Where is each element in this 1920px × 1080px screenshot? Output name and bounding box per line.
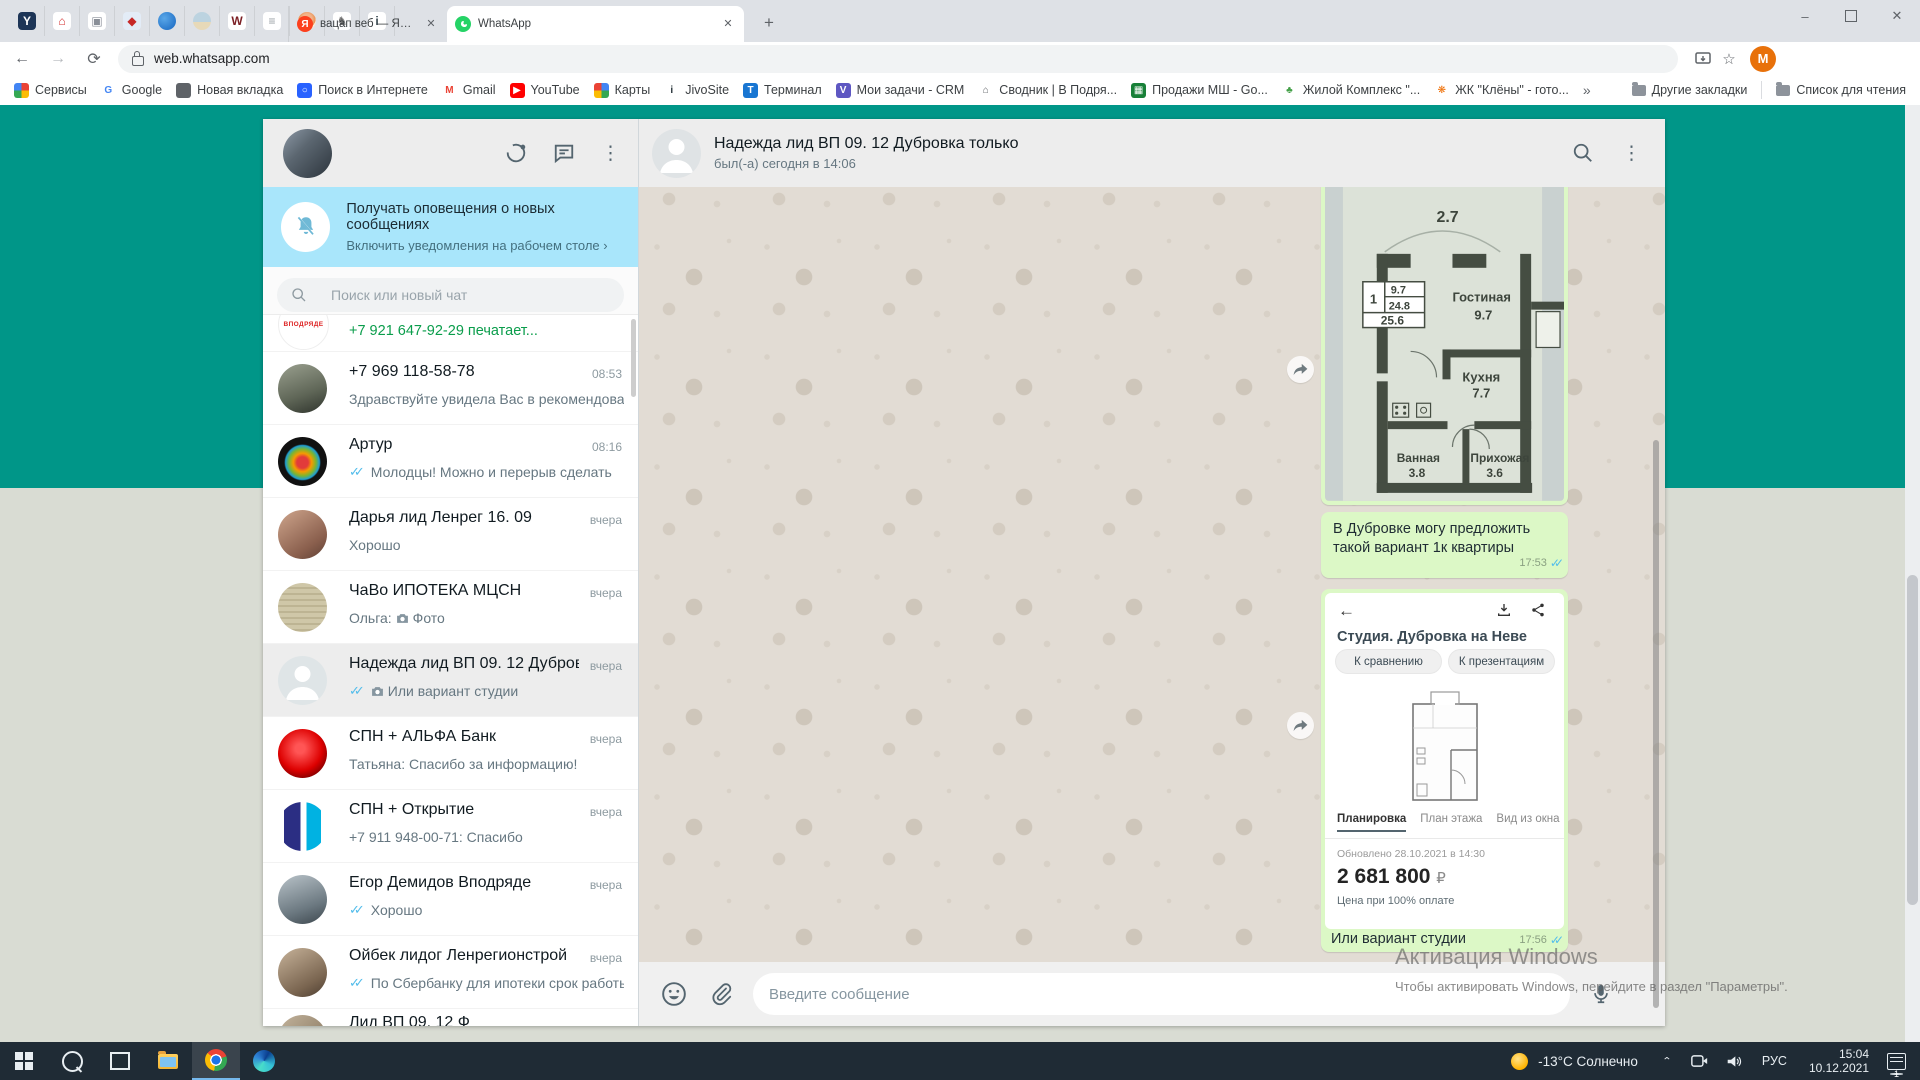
chat-time: вчера	[590, 586, 622, 600]
whatsapp-favicon	[455, 16, 471, 32]
pinned-tab[interactable]: W	[220, 6, 255, 36]
room-living-area: 9.7	[1474, 308, 1492, 323]
tab-layout[interactable]: Планировка	[1337, 813, 1406, 825]
pinned-tab[interactable]: ≡	[255, 6, 290, 36]
bookmark-items: Сервисы G Google Новая вкладка ○ Поиск в…	[0, 83, 1569, 98]
browser-tab-strip: Y ⌂ ▣ ◆	[0, 0, 1920, 42]
read-ticks-icon: ✓✓	[1550, 554, 1558, 573]
share-icon[interactable]	[1530, 602, 1546, 618]
compare-button[interactable]: К сравнению	[1335, 649, 1442, 674]
avatar	[278, 510, 327, 559]
message-body: В Дубровке могу предложить такой вариант…	[1333, 521, 1530, 556]
conversation-pane: Надежда лид ВП 09. 12 Дубровка только бы…	[638, 119, 1665, 1026]
notification-center-icon[interactable]: 1	[1887, 1053, 1906, 1070]
chat-preview: ✓✓ Или вариант студии	[349, 683, 624, 699]
chat-preview: ✓✓ +7 911 948-00-71: Спасибо	[349, 829, 624, 845]
card-toolbar: ←	[1325, 593, 1564, 627]
bookmark[interactable]: T Терминал	[743, 83, 822, 98]
pinned-tab-icon: Y	[18, 12, 36, 30]
chat-preview: ✓✓ Хорошо	[349, 537, 624, 553]
volume-icon[interactable]	[1726, 1054, 1743, 1069]
forward-message-button[interactable]	[1287, 356, 1314, 383]
read-ticks-icon: ✓✓	[349, 975, 359, 991]
avatar	[278, 875, 327, 924]
read-ticks-icon: ✓✓	[349, 464, 359, 480]
meet-now-icon[interactable]	[1691, 1054, 1708, 1068]
peer-avatar[interactable]	[652, 129, 701, 178]
search-pill[interactable]	[277, 278, 624, 312]
bookmark-favicon	[594, 83, 609, 98]
pinned-tab-icon: ⌂	[53, 12, 71, 30]
tab-close-icon[interactable]: ✕	[423, 16, 439, 32]
chat-name: Дарья лид Ленрег 16. 09	[349, 509, 532, 527]
chat-list-item-partial[interactable]: Лид ВП 09. 12 Ф	[263, 1009, 638, 1026]
message-text[interactable]: В Дубровке могу предложить такой вариант…	[1321, 512, 1568, 578]
bell-muted-icon	[281, 202, 330, 252]
clock-date: 10.12.2021	[1809, 1061, 1869, 1075]
camera-icon	[396, 613, 409, 624]
chat-list-item[interactable]: Артур 08:16 ✓✓ Молодцы! Можно и перерыв …	[263, 425, 638, 498]
message-input[interactable]	[753, 973, 1570, 1015]
card-price: 2 681 800 ₽	[1337, 865, 1446, 889]
search-section	[263, 267, 638, 315]
chat-name: Артур	[349, 436, 392, 454]
room-kitchen-label: Кухня	[1462, 369, 1500, 384]
tab-title: WhatsApp	[478, 18, 714, 30]
taskbar-search-icon[interactable]	[48, 1042, 96, 1080]
chat-menu-kebab-icon[interactable]: ⋮	[1622, 142, 1641, 165]
my-profile-avatar[interactable]	[283, 129, 332, 178]
bookmark-star-icon[interactable]: ☆	[1716, 46, 1742, 72]
read-ticks-icon: ✓✓	[349, 683, 359, 699]
chat-time: вчера	[590, 878, 622, 892]
chat-time: вчера	[590, 513, 622, 527]
chat-list-item[interactable]: Егор Демидов Вподряде вчера ✓✓ Хорошо	[263, 863, 638, 936]
windows-taskbar: -13°C Солнечно ⌃ РУС 15:04 10.12.2021 1	[0, 1042, 1920, 1080]
bookmark-favicon: ❋	[1434, 83, 1449, 98]
window-controls: – ✕	[1782, 0, 1920, 32]
chat-name: +7 969 118-58-78	[349, 363, 475, 381]
room-living-label: Гостиная	[1452, 290, 1510, 305]
presentations-button[interactable]: К презентациям	[1448, 649, 1555, 674]
preview-text: +7 911 948-00-71: Спасибо	[349, 829, 523, 845]
bookmark-favicon: G	[101, 83, 116, 98]
chrome-taskbar-icon[interactable]	[192, 1042, 240, 1080]
plan-dim-label: 2.7	[1437, 209, 1459, 226]
reading-list-icon	[1776, 85, 1790, 96]
pinned-tab-icon: ▣	[88, 12, 106, 30]
file-explorer-icon[interactable]	[144, 1042, 192, 1080]
new-tab-button[interactable]: +	[756, 10, 782, 36]
edge-taskbar-icon[interactable]	[240, 1042, 288, 1080]
notification-badge: 1	[1890, 1073, 1903, 1075]
menu-kebab-icon[interactable]: ⋮	[601, 142, 620, 165]
screen: Y ⌂ ▣ ◆	[0, 0, 1920, 1080]
bookmark[interactable]: i JivoSite	[664, 83, 729, 98]
pinned-tab-icon: ◆	[123, 12, 141, 30]
card-title: Студия. Дубровка на Неве	[1337, 629, 1527, 645]
preview-text: Хорошо	[371, 902, 423, 918]
hidden-icons-chevron[interactable]: ⌃	[1662, 1055, 1672, 1066]
emoji-icon[interactable]	[661, 981, 687, 1007]
room-hall-label: Прихожая	[1470, 451, 1529, 465]
message-image-floorplan[interactable]: 2.7	[1321, 178, 1568, 505]
bookmark-favicon: ○	[297, 83, 312, 98]
plan-stamp-num: 1	[1370, 292, 1377, 307]
avatar	[278, 802, 327, 851]
bookmark-favicon: ▶	[510, 83, 525, 98]
preview-text: Молодцы! Можно и перерыв сделать	[371, 464, 612, 480]
reading-list[interactable]: Список для чтения	[1776, 83, 1906, 97]
message-caption: Или вариант студии	[1331, 931, 1466, 947]
folder-icon	[1632, 85, 1646, 96]
bookmark[interactable]: M Gmail	[442, 83, 496, 98]
chat-time: вчера	[590, 659, 622, 673]
bookmark-label: Карты	[615, 83, 651, 97]
preview-text: Или вариант студии	[388, 683, 518, 699]
tab-floor[interactable]: План этажа	[1420, 813, 1482, 825]
bookmark-label: Google	[122, 83, 162, 97]
pinned-tab[interactable]: Y	[10, 6, 45, 36]
bookmark[interactable]: Карты	[594, 83, 651, 98]
attach-paperclip-icon[interactable]	[709, 982, 733, 1006]
currency-symbol: ₽	[1436, 870, 1446, 887]
new-chat-icon[interactable]	[553, 142, 575, 164]
bookmark-favicon	[14, 83, 29, 98]
preview-sender: Ольга:	[349, 610, 392, 626]
start-button[interactable]	[0, 1042, 48, 1080]
default-person-icon	[652, 129, 701, 178]
pinned-tab[interactable]: ◆	[115, 6, 150, 36]
chat-preview: ✓✓ Хорошо	[349, 902, 624, 918]
preview-text: Хорошо	[349, 537, 401, 553]
search-icon	[291, 287, 307, 303]
chat-name: СПН + Открытие	[349, 801, 474, 819]
chat-time: вчера	[590, 732, 622, 746]
bookmark-favicon	[176, 83, 191, 98]
maximize-button[interactable]	[1828, 0, 1874, 32]
bookmark-label: YouTube	[531, 83, 580, 97]
message-input-bar	[639, 962, 1665, 1026]
other-bookmarks[interactable]: Другие закладки	[1632, 83, 1748, 97]
chat-preview: ✓✓ Здравствуйте увидела Вас в рекомендов…	[349, 391, 624, 407]
conversation-header[interactable]: Надежда лид ВП 09. 12 Дубровка только бы…	[639, 119, 1665, 187]
chat-time: вчера	[590, 951, 622, 965]
avatar	[278, 583, 327, 632]
banner-title: Получать оповещения о новых сообщениях	[346, 201, 638, 233]
plan-stamp-total: 25.6	[1381, 314, 1405, 328]
bookmark[interactable]: V Мои задачи - CRM	[836, 83, 965, 98]
search-in-chat-icon[interactable]	[1572, 142, 1594, 164]
pinned-tab-icon: ≡	[263, 12, 281, 30]
chat-list: ВПОДРЯДЕ +7 921 647-92-29 печатает... +7…	[263, 315, 638, 1026]
chat-preview: ✓✓ Ольга: Фото	[349, 610, 624, 626]
browser-profile-avatar[interactable]: M	[1750, 46, 1776, 72]
lock-icon	[132, 56, 144, 66]
tab-close-icon[interactable]: ✕	[720, 16, 736, 32]
other-bookmarks-label: Другие закладки	[1652, 83, 1748, 97]
bookmark[interactable]: Сервисы	[14, 83, 87, 98]
chat-time: вчера	[590, 805, 622, 819]
page-scrollbar[interactable]	[1905, 105, 1920, 1042]
preview-text: Фото	[413, 610, 445, 626]
read-ticks-icon: ✓✓	[1550, 933, 1558, 947]
chat-list-item-typing[interactable]: ВПОДРЯДЕ +7 921 647-92-29 печатает...	[263, 315, 638, 352]
bookmark-favicon: i	[664, 83, 679, 98]
property-card[interactable]: ← Студия. Дубровка на Неве К сравнению К…	[1325, 593, 1564, 929]
card-updated: Обновлено 28.10.2021 в 14:30	[1337, 848, 1485, 860]
pinned-tab-icon	[193, 12, 211, 30]
bookmark[interactable]: ○ Поиск в Интернете	[297, 83, 428, 98]
bookmark[interactable]: G Google	[101, 83, 162, 98]
reading-list-label: Список для чтения	[1796, 83, 1906, 97]
card-price-note: Цена при 100% оплате	[1337, 895, 1454, 907]
bookmark[interactable]: ⌂ Сводник | В Подря...	[978, 83, 1117, 98]
avatar: ВПОДРЯДЕ	[278, 315, 329, 350]
bookmark-label: Жилой Комплекс "...	[1303, 83, 1420, 97]
avatar	[278, 729, 327, 778]
chat-name: ЧаВо ИПОТЕКА МЦСН	[349, 582, 521, 600]
chat-preview: ✓✓ Молодцы! Можно и перерыв сделать	[349, 464, 624, 480]
bookmark-favicon: V	[836, 83, 851, 98]
bookmark-label: JivoSite	[685, 83, 729, 97]
task-view-icon[interactable]	[96, 1042, 144, 1080]
chat-list-item[interactable]: +7 969 118-58-78 08:53 ✓✓ Здравствуйте у…	[263, 352, 638, 425]
forward-icon[interactable]: →	[44, 45, 72, 73]
bookmark[interactable]: ❋ ЖК "Клёны" - гото...	[1434, 83, 1569, 98]
bookmark-favicon: T	[743, 83, 758, 98]
message-property-card[interactable]: ← Студия. Дубровка на Неве К сравнению К…	[1321, 589, 1568, 952]
preview-text: Татьяна: Спасибо за информацию!	[349, 756, 577, 772]
studio-plan-thumbnail	[1405, 688, 1485, 808]
pinned-tab[interactable]: ⌂	[45, 6, 80, 36]
sidebar-header: ⋮	[263, 119, 638, 187]
bookmark-favicon: M	[442, 83, 457, 98]
avatar	[278, 948, 327, 997]
chat-scrollbar-thumb[interactable]	[1653, 440, 1659, 1008]
url-bar[interactable]: web.whatsapp.com	[118, 45, 1678, 73]
chat-list-item[interactable]: СПН + Открытие вчера ✓✓ +7 911 948-00-71…	[263, 790, 638, 863]
close-button[interactable]: ✕	[1874, 0, 1920, 32]
bookmark-label: Сервисы	[35, 83, 87, 97]
plan-stamp-living: 9.7	[1391, 285, 1406, 297]
camera-icon	[371, 686, 384, 697]
mic-icon[interactable]	[1590, 983, 1612, 1005]
room-hall-area: 3.6	[1486, 466, 1503, 480]
yandex-favicon: Я	[297, 16, 313, 32]
chat-list-item[interactable]: Дарья лид Ленрег 16. 09 вчера ✓✓ Хорошо	[263, 498, 638, 571]
system-tray: -13°C Солнечно ⌃ РУС 15:04 10.12.2021 1	[1511, 1047, 1920, 1075]
bookmark-favicon: ⌂	[978, 83, 993, 98]
peer-last-seen: был(-а) сегодня в 14:06	[714, 156, 1018, 171]
sidebar: ⋮ Получать оповещения о новых сообщениях…	[263, 119, 638, 1026]
back-arrow-icon[interactable]: ←	[1338, 601, 1355, 621]
card-tabs: Планировка План этажа Вид из окна	[1337, 813, 1560, 825]
chat-list-item[interactable]: Ойбек лидог Ленрегионстрой вчера ✓✓ По С…	[263, 936, 638, 1009]
plan-stamp-area: 24.8	[1389, 301, 1410, 313]
pinned-tab-icon: W	[228, 12, 246, 30]
tab-yandex-search[interactable]: Я вацап веб — Яндекс: нашлось 6 ✕	[288, 6, 447, 42]
bookmark[interactable]: ▦ Продажи МШ - Go...	[1131, 83, 1268, 98]
chat-name: СПН + АЛЬФА Банк	[349, 728, 496, 746]
whatsapp-app-window: ⋮ Получать оповещения о новых сообщениях…	[263, 119, 1665, 1026]
weather-text[interactable]: -13°C Солнечно	[1538, 1054, 1638, 1069]
typing-indicator: +7 921 647-92-29 печатает...	[349, 323, 538, 339]
language-indicator[interactable]: РУС	[1762, 1054, 1787, 1068]
chat-time: 08:53	[592, 367, 622, 381]
chat-list-item[interactable]: Надежда лид ВП 09. 12 Дубровка... вчера …	[263, 644, 638, 717]
chat-name: Егор Демидов Вподряде	[349, 874, 531, 892]
clock[interactable]: 15:04 10.12.2021	[1809, 1047, 1869, 1075]
bookmark[interactable]: ▶ YouTube	[510, 83, 580, 98]
pinned-tab[interactable]	[185, 6, 220, 36]
bookmark-favicon: ♣	[1282, 83, 1297, 98]
clock-time: 15:04	[1809, 1047, 1869, 1061]
pinned-tab[interactable]	[150, 6, 185, 36]
room-bath-area: 3.8	[1409, 466, 1426, 480]
tab-whatsapp[interactable]: WhatsApp ✕	[447, 6, 744, 42]
address-bar-actions: ☆ M	[1690, 46, 1776, 72]
default-person-icon	[278, 656, 327, 705]
bookmark[interactable]: ♣ Жилой Комплекс "...	[1282, 83, 1420, 98]
preview-text: По Сбербанку для ипотеки срок работы на …	[371, 975, 624, 991]
bookmark-label: Gmail	[463, 83, 496, 97]
chat-list-item[interactable]: СПН + АЛЬФА Банк вчера ✓✓ Татьяна: Спаси…	[263, 717, 638, 790]
read-ticks-icon: ✓✓	[349, 902, 359, 918]
bookmarks-overflow-icon[interactable]: »	[1583, 82, 1591, 98]
message-time: 17:56	[1519, 934, 1547, 946]
install-app-icon[interactable]	[1690, 46, 1716, 72]
message-time: 17:53	[1519, 554, 1547, 573]
chat-preview: ✓✓ По Сбербанку для ипотеки срок работы …	[349, 975, 624, 991]
chat-time: 08:16	[592, 440, 622, 454]
bookmark[interactable]: Новая вкладка	[176, 83, 283, 98]
banner-subtitle[interactable]: Включить уведомления на рабочем столе ›	[346, 238, 638, 253]
tab-title: вацап веб — Яндекс: нашлось 6	[320, 18, 417, 30]
url-text: web.whatsapp.com	[154, 51, 270, 66]
browser-address-bar: ← → ⟳ web.whatsapp.com ☆ M	[0, 42, 1920, 75]
chat-list-item[interactable]: ЧаВо ИПОТЕКА МЦСН вчера ✓✓ Ольга: Фото	[263, 571, 638, 644]
bookmark-label: ЖК "Клёны" - гото...	[1455, 83, 1569, 97]
search-input[interactable]	[329, 286, 603, 304]
chat-name: Надежда лид ВП 09. 12 Дубровка...	[349, 655, 579, 673]
room-bath-label: Ванная	[1397, 451, 1440, 465]
bookmark-label: Продажи МШ - Go...	[1152, 83, 1268, 97]
weather-sun-icon[interactable]	[1511, 1053, 1528, 1070]
reload-icon[interactable]: ⟳	[80, 45, 108, 73]
sidebar-scrollbar-thumb[interactable]	[631, 319, 636, 397]
avatar-logo-text: ВПОДРЯДЕ	[284, 321, 324, 328]
minimize-button[interactable]: –	[1782, 0, 1828, 32]
peer-name: Надежда лид ВП 09. 12 Дубровка только	[714, 135, 1018, 153]
tab-window-view[interactable]: Вид из окна	[1496, 813, 1559, 825]
bookmark-label: Мои задачи - CRM	[857, 83, 965, 97]
status-icon[interactable]	[505, 142, 527, 164]
chat-preview: ✓✓ Татьяна: Спасибо за информацию!	[349, 756, 624, 772]
bookmark-label: Поиск в Интернете	[318, 83, 428, 97]
avatar	[278, 1015, 327, 1026]
preview-text: Здравствуйте увидела Вас в рекомендованн…	[349, 391, 624, 407]
bookmarks-bar: Сервисы G Google Новая вкладка ○ Поиск в…	[0, 75, 1920, 106]
notifications-banner[interactable]: Получать оповещения о новых сообщениях В…	[263, 187, 638, 267]
bookmark-label: Сводник | В Подря...	[999, 83, 1117, 97]
back-icon[interactable]: ←	[8, 45, 36, 73]
bookmark-favicon: ▦	[1131, 83, 1146, 98]
pinned-tab[interactable]: ▣	[80, 6, 115, 36]
chat-name: Ойбек лидог Ленрегионстрой	[349, 947, 567, 965]
avatar	[278, 364, 327, 413]
chat-name: Лид ВП 09. 12 Ф	[349, 1014, 470, 1026]
bookmark-label: Терминал	[764, 83, 822, 97]
forward-message-button[interactable]	[1287, 712, 1314, 739]
bookmark-label: Новая вкладка	[197, 83, 283, 97]
room-kitchen-area: 7.7	[1472, 385, 1490, 400]
download-icon[interactable]	[1496, 602, 1512, 618]
avatar	[278, 437, 327, 486]
page-scrollbar-thumb[interactable]	[1907, 575, 1918, 905]
pinned-tab-icon	[158, 12, 176, 30]
avatar	[278, 656, 327, 705]
